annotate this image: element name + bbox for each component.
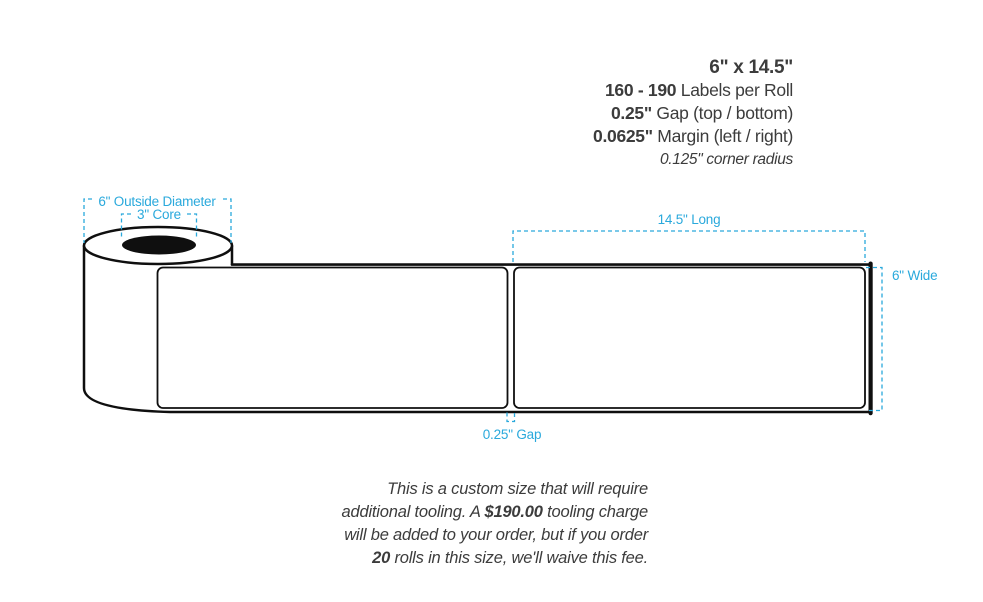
label-roll-product-diagram: 6" x 14.5" 160 - 190 Labels per Roll 0.2… (0, 0, 983, 602)
note-text-3: rolls in this size, we'll waive this fee… (390, 549, 648, 567)
wide-label: 6" Wide (889, 269, 940, 283)
core-label: 3" Core (134, 208, 184, 222)
gap-label: 0.25" Gap (480, 428, 545, 442)
note-rolls-count: 20 (372, 549, 390, 567)
note-tooling-charge: $190.00 (485, 503, 543, 521)
roll-line-art (84, 227, 871, 413)
label-rect-1 (158, 268, 508, 409)
long-label: 14.5" Long (655, 213, 724, 227)
gap-dimension-bracket (507, 413, 515, 422)
long-dimension-bracket (513, 231, 865, 262)
label-rect-2 (514, 268, 865, 409)
roll-core-hole (122, 236, 196, 255)
custom-size-note: This is a custom size that will require … (336, 478, 648, 570)
